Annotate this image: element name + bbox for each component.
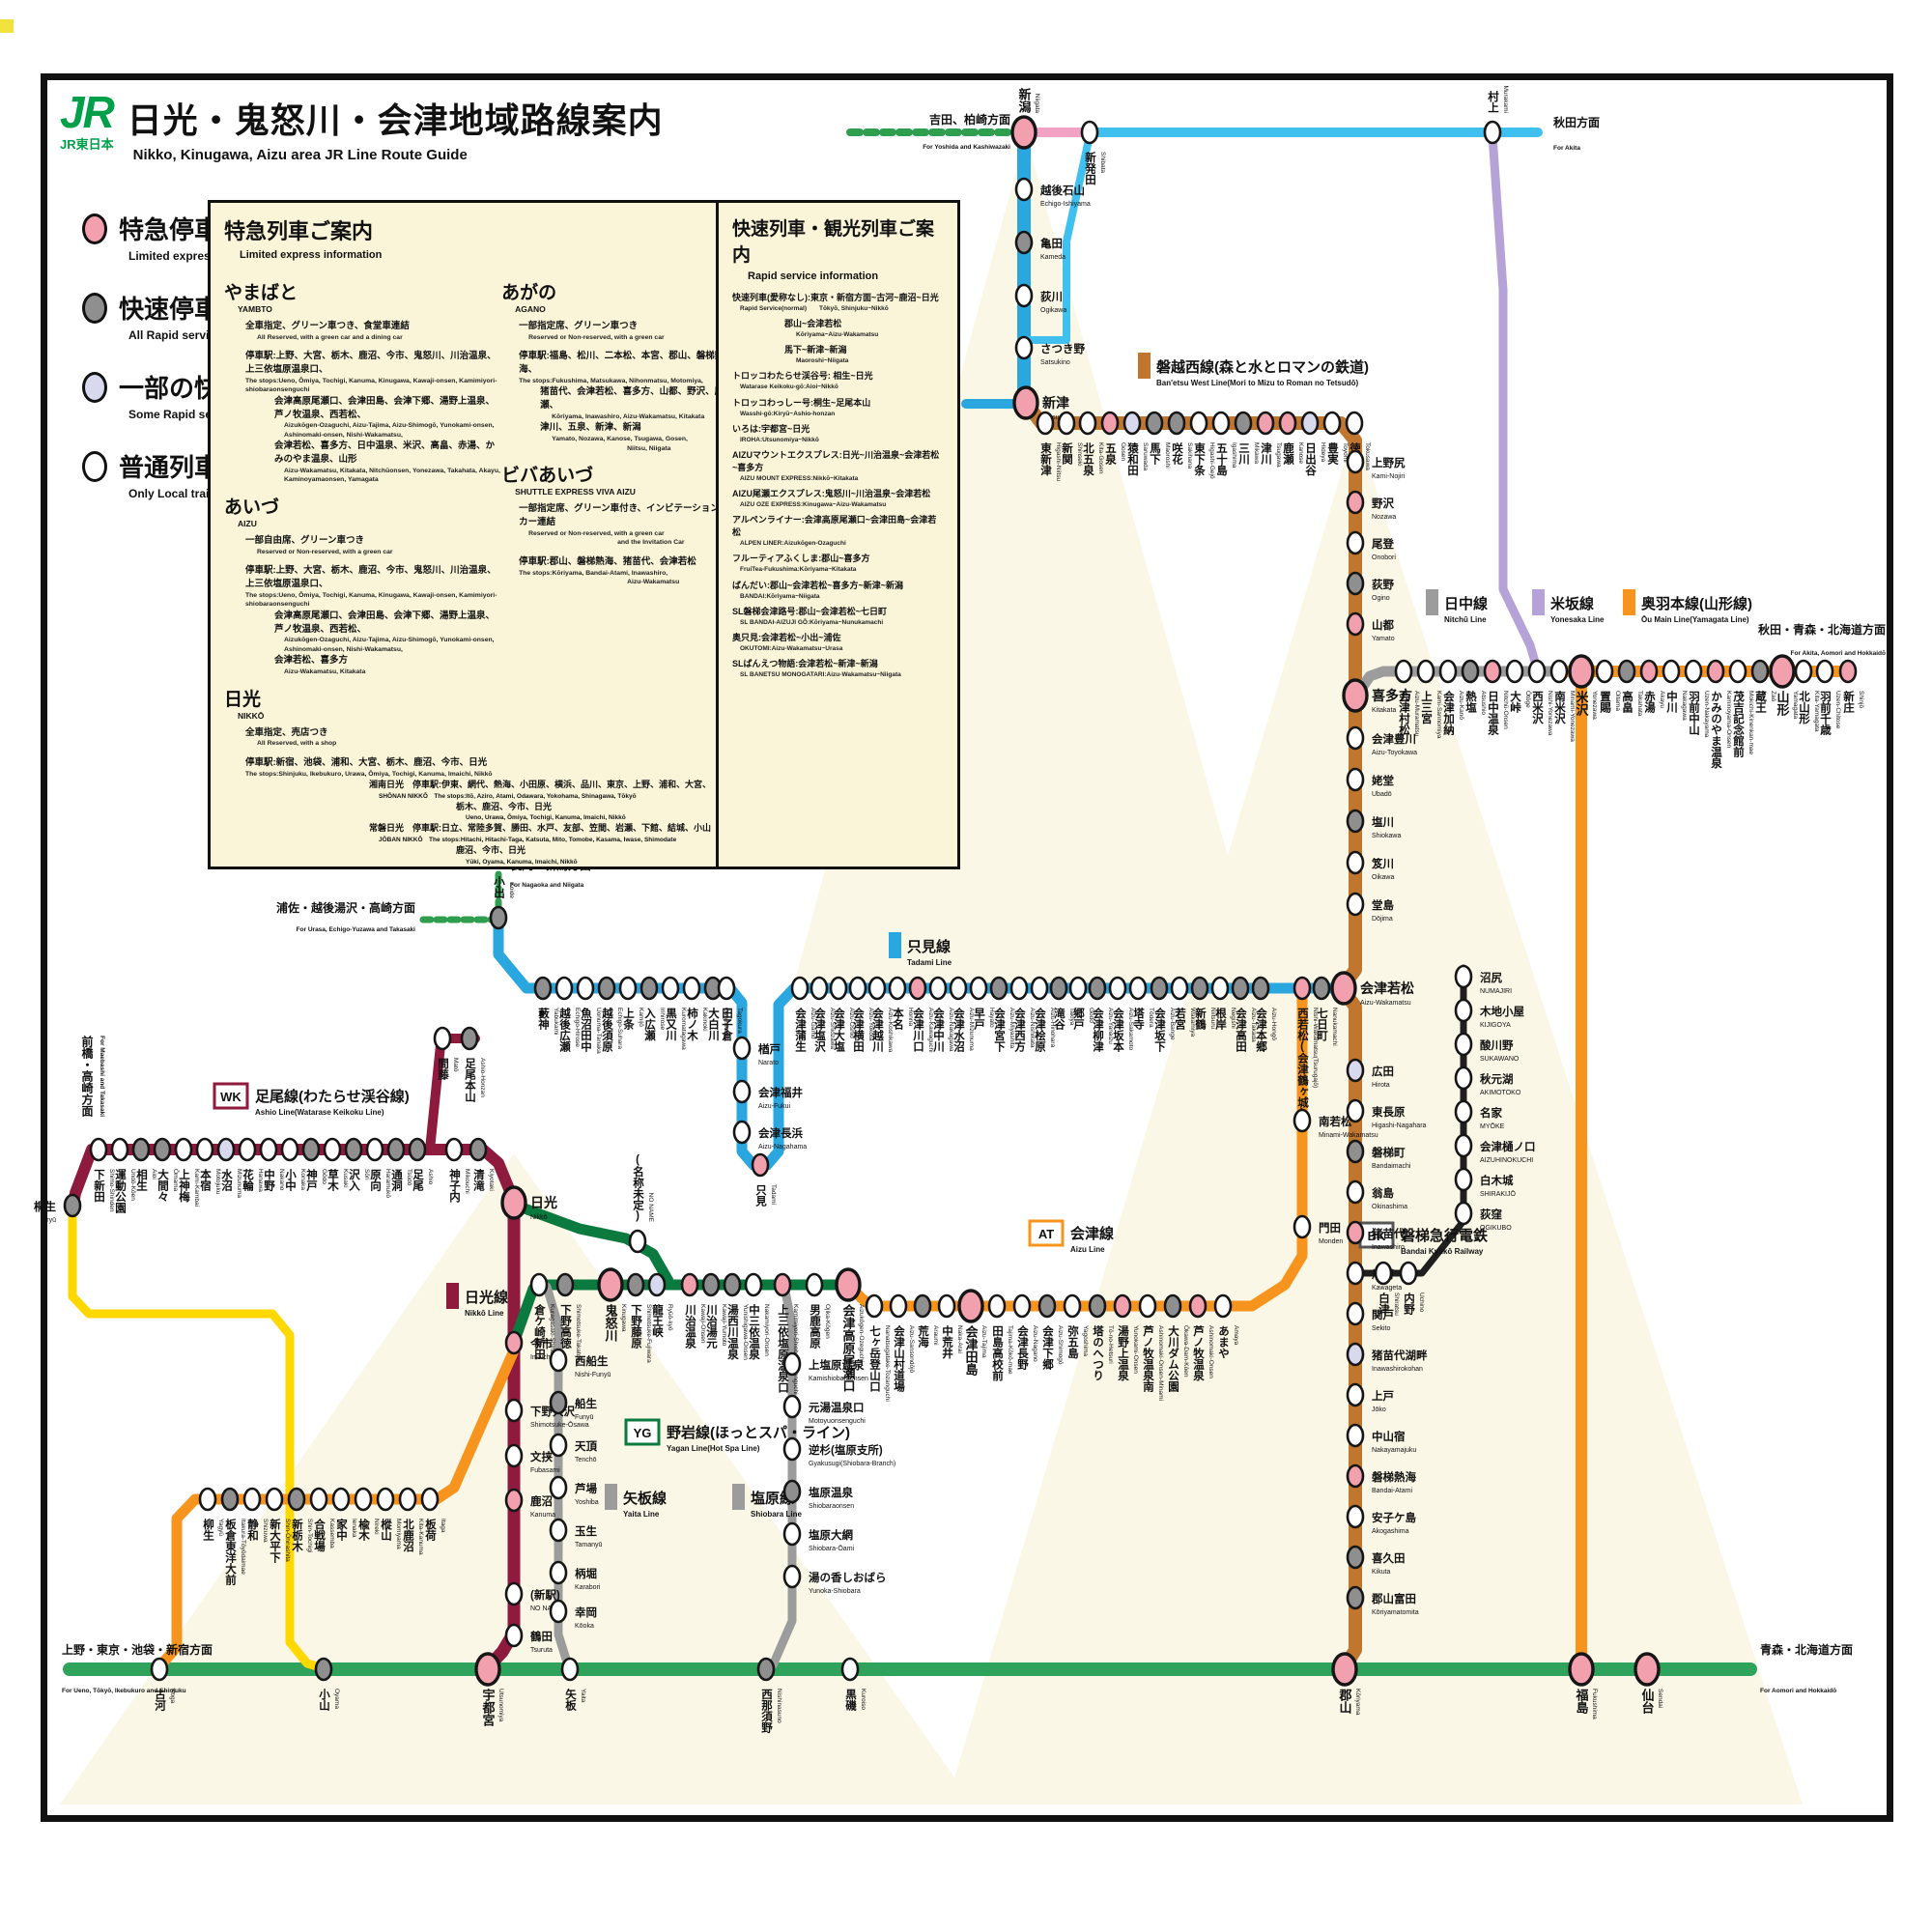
info-text-row: YAMBTO [238,304,501,314]
station-Shiobara-Ōami [784,1523,800,1545]
station-Shimotsuke-Takatoku [557,1274,573,1295]
station-label-en: Tamanyū [575,1542,603,1548]
station-label: 木地小屋 [1479,1005,1524,1018]
station-label-en: Nakayamajuku [1372,1447,1416,1454]
station-KIJIGOYA [1456,1000,1471,1021]
station-label-en: Utsunomiya [497,1689,504,1722]
station-label: 古河 [154,1688,166,1712]
station-Satsukino [1016,337,1032,358]
station-label-en: Ogikawa [1040,307,1066,314]
station-label: 小山 [318,1688,331,1712]
station-Tajima-Kōkō-mae [989,1295,1005,1317]
station-label-en: Nireki [373,1519,380,1535]
station-label-en: Funyū [575,1414,594,1421]
station-label-en: Shiokawa [1372,833,1401,839]
station-Higashi-Niitsu [1037,412,1053,434]
station-label-en: Ashio [427,1169,434,1185]
info-text-row: ばんだい:郡山~会津若松~喜多方~新津~新潟 [732,580,944,592]
station-Aizukōgen-Ozeguchi [837,1269,860,1300]
station-label-en: Ashinomaki-Onsen [1207,1325,1214,1378]
station-label-en: Kameda [1040,254,1065,261]
station-label-en: Tagokura [736,1008,743,1034]
station-Aizu-Yokota [850,978,866,999]
page-subtitle: Nikko, Kinugawa, Aizu area JR Line Route… [133,147,664,163]
direction-label: 前橋・高崎方面 [80,1035,94,1118]
station-Nishi-Funyū [551,1350,566,1371]
station-Nozawa [1348,492,1363,513]
line-name-en: Ban'etsu West Line(Mori to Mizu to Roman… [1156,379,1358,387]
station-Atsushio [1463,661,1478,682]
station-Honna [890,978,905,999]
station-label-en: Nanukamachi [1331,1008,1338,1046]
station-label: 亀田 [1040,237,1063,250]
station-Saruwada [1124,412,1140,434]
limited-express-title-en: Limited express information [240,249,728,261]
station-Motojuku [197,1139,213,1160]
station-label: 越後広瀬 [558,1007,572,1053]
station-Kami-Nojiri [1348,451,1363,472]
station-label: 新発田 [1084,151,1097,185]
station-label: 田子倉 [721,1008,734,1041]
station-label-en: Ōkawa-Dam-Kōen [1182,1325,1190,1378]
station-Koide [491,907,506,928]
info-text-row: Kōriyama, Inawashiro, Aizu-Wakamatsu, Ki… [552,412,728,422]
info-text-row: ビバあいづ [501,461,728,487]
station-label-en: Sekito [1372,1325,1391,1332]
station-label: 蔵王 [1754,690,1767,714]
station-label-en: Echigo-Ishiyama [1040,201,1091,208]
info-text-row: Maoroshi~Niigata [796,356,944,365]
info-text-row: All Reserved, with a shop [257,739,501,749]
limited-express-info-box: 特急列車ご案内 Limited express information やまばと… [208,200,745,869]
station-label: 会津田島 [964,1324,979,1377]
info-text-row: AIZUマウントエクスプレス:日光~川治温泉~会津若松~喜多方 [732,449,944,474]
info-text-row: フルーティアふくしま:郡山~喜多方 [732,553,944,565]
station-Jōko [1348,1384,1363,1406]
station-label-en: Araumi [932,1325,939,1346]
station-Shin-Tochigi [289,1489,304,1510]
station-Kawaji-Onsen [682,1274,697,1295]
station-label: 会津桧原 [1034,1007,1047,1053]
station-label: 会津蒲生 [794,1007,808,1053]
station-Sekito [1348,1303,1363,1324]
station-Yamagata [1771,656,1794,687]
info-text-row: 猪苗代、会津若松、喜多方、山都、野沢、鹿瀬、 [540,385,728,412]
station-label: 猪苗代湖畔 [1371,1349,1428,1362]
station-label: 小出 [493,875,506,899]
station-MYŌKE [1456,1101,1471,1122]
station-label: 熱塩 [1464,690,1477,714]
station-Inawashiro [1348,1222,1363,1243]
line-name: 野岩線(ほっとスパ・ライン) [667,1424,850,1441]
station-Mokichi-Kinenkan-mae [1730,661,1746,682]
station-Mikawa [1236,412,1251,434]
station-label-en: Kinugawa [620,1304,627,1332]
station-Kuragasaki-Shinden [531,1274,547,1295]
station-Kōriyama [1333,1654,1356,1685]
badge-letters: WK [220,1090,241,1104]
station-label: 北五泉 [1082,441,1095,476]
station-label: 七日町 [1316,1007,1328,1041]
station-label: 田島高校前 [991,1325,1004,1381]
station-Echigo-Ishiyama [1016,179,1032,200]
station-label: 会津中川 [932,1007,946,1053]
station-label: 玉生 [575,1524,597,1538]
station-Kiryū [65,1195,80,1216]
line-name: 奥羽本線(山形線) [1641,595,1752,612]
station-label: 足尾 [412,1169,425,1192]
info-text-row: 会津高原尾瀬口、会津田島、会津下郷、湯野上温泉、芦ノ牧温泉、西若松、 [274,395,501,422]
station-label-en: Tsugawa [1275,442,1282,468]
station-label: 下野藤原 [630,1304,642,1350]
station-label: 西若松(会津鶴ヶ城) [1296,1008,1310,1120]
station-label: 荻川 [1040,290,1063,303]
station-Minami-Wakamatsu [1294,1110,1310,1131]
station-label: 合戦場 [313,1518,326,1552]
station-label: 猿和田 [1126,441,1140,476]
station-label: 野沢 [1372,497,1394,510]
station-label: 新鶴 [1194,1007,1207,1031]
station-label-en: Ryūō-kyō [667,1304,673,1331]
jr-east-logo-text: JR東日本 [60,134,114,153]
station-Naka-Arai [939,1295,954,1317]
station-label: 若宮 [1174,1007,1186,1031]
station-label-en: Yunoka-Shiobara [809,1588,861,1595]
station-label: 会津横田 [852,1007,866,1053]
station-label: 元湯温泉口 [809,1401,865,1414]
station-Haramukō [367,1139,383,1160]
station-label-en: Inawashirokohan [1372,1366,1423,1373]
station-label-en: Yagoshima [1082,1325,1089,1356]
station-label-en: Mikouchi [464,1169,470,1194]
direction-label-en: For Maebashi and Takasaki [99,1036,105,1117]
station-label: 村上 [1487,90,1499,113]
station-label-en: Kawageta [1372,1285,1402,1292]
station-label: 白木城 [1480,1174,1514,1187]
line-name: 只見線 [907,938,951,955]
station-label-en: Bandaimachi [1372,1163,1411,1170]
station-label: 会津加納 [1442,690,1456,736]
info-text-row: Reserved or Non-reserved, with a green c… [528,333,728,343]
station-Aizu-Nagano [1014,1295,1030,1317]
station-label: 会津山村道場 [893,1324,906,1393]
line-name: 日光線 [465,1289,508,1306]
info-text-row: SLばんえつ物語:会津若松~新津~新潟 [732,658,944,670]
station-label-en: Inawashiro [1372,1244,1405,1251]
station-Shin-Ōhirashita [267,1489,282,1510]
station-Ashinomaki-Onsen [1190,1295,1206,1317]
station-label-en: Shiratsu [1393,1293,1400,1316]
station-label-en: Aizu-Sansondōjō [908,1325,915,1374]
station-label: 会津柳津 [1092,1007,1105,1053]
station-label: 茂吉記念館前 [1732,690,1746,758]
info-text-row: 八王子日光:八王子、立川、新秋津、北朝霞、大宮、栃木、鹿沼、今市、日光 [369,867,728,869]
station-label: 喜久田 [1372,1551,1406,1565]
station-label: 上野尻 [1372,456,1406,469]
line-name-en: Shiobara Line [751,1510,802,1519]
station-label-en: Matō [452,1058,459,1072]
info-text-row [224,342,501,350]
station-Higashi-Gejō [1191,412,1207,434]
station-label-en: Mokichi-Kinenkan-mae [1747,691,1754,754]
station-label: 荒海 [917,1324,930,1349]
line-name-en: Yonesaka Line [1550,615,1605,624]
station-label: 五十島 [1215,442,1228,476]
station-label-en: Murakami [1502,85,1509,113]
station-label-en: Tsuruta [530,1647,553,1654]
station-Yunokami-Onsen [1115,1295,1130,1317]
station-OGIKUBO [1456,1203,1471,1224]
info-text-row: Aizukōgen-Ozaguchi, Aizu-Tajima, Aizu-Sh… [284,636,501,654]
station-label: (名称未定) [632,1154,645,1222]
info-text-row: Wasshi-gō:Kiryū~Ashio-honzan [740,410,944,418]
station-label-en: Gosen [1120,442,1126,462]
station-Kita-Gosen [1080,412,1095,434]
station-label: 湯野上温泉 [1117,1324,1130,1381]
station-Sendai [1635,1654,1659,1685]
station-label: 日中温泉 [1487,691,1500,736]
station-label-en: Kita-Gosen [1097,442,1104,474]
info-text-row: All Reserved, with a green car and a din… [257,333,501,343]
station-Funyū [551,1392,566,1413]
station-Hayato [971,978,986,999]
station-label-en: NUMAJIRI [1480,988,1512,995]
station-label: 本名 [892,1007,904,1031]
station-NO NAME [630,1231,645,1252]
station-label: 東長原 [1372,1105,1406,1119]
info-text-row: AIZU [238,519,501,528]
info-text-row: Aizukōgen-Ozaguchi, Aizu-Tajima, Aizu-Sh… [284,421,501,440]
station-label: 原向 [369,1169,382,1192]
direction-label-en: For Akita [1553,145,1580,152]
station-Aizu-Wakamatsu [1332,973,1355,1004]
station-label: 小中 [284,1168,298,1192]
station-label: 磐梯町 [1371,1146,1406,1159]
rapid-dot-icon [82,293,107,324]
station-label: 沼尻 [1480,971,1502,984]
station-Okinashima [1348,1181,1363,1203]
station-Kuroiso [842,1659,858,1680]
station-label: 郷戸 [1072,1007,1085,1031]
info-text-row: トロッコわたらせ渓谷号: 相生~日光 [732,370,944,383]
station-label-en: Shinjō [1858,691,1864,708]
info-text-row: 湘南日光 停車駅:伊東、網代、熱海、小田原、横浜、品川、東京、上野、浦和、大宮、 [369,779,728,792]
info-text-row: JŌBAN NIKKŌ The stops:Hitachi, Hitachi-T… [379,836,728,844]
station-label-en: Kita-Kanuma [417,1519,424,1555]
station-label-en: Motoyuonsenguchi [809,1418,866,1425]
station-Shinjō [1840,661,1856,682]
station-Tsugawa [1258,412,1273,434]
station-label: 新大平下 [269,1518,281,1564]
station-Takiya [1051,978,1066,999]
limited-express-dot-icon [82,213,107,244]
line-name-en: Yagan Line(Hot Spa Line) [667,1444,760,1453]
station-label: 羽前千歳 [1819,691,1832,736]
station-label-en: Takahata [1636,691,1643,717]
line-name: 会津線 [1070,1225,1114,1242]
station-label: 会津坂本 [1112,1007,1125,1053]
station-Kusaki [325,1139,340,1160]
station-Yonezawa [1570,656,1593,687]
station-SUKAWANO [1456,1034,1471,1055]
local-dot-icon [82,451,107,482]
station-label: 樅山 [380,1518,392,1542]
station-label-en: Uzen-Chitose [1834,691,1841,729]
direction-label-en: For Yoshida and Kashiwazaki [923,144,1010,151]
info-text-row: The stops:Fukushima, Matsukawa, Nihonmat… [519,377,728,386]
station-label: 日光 [530,1195,557,1210]
info-text-row: 一部指定席、グリーン車付き、インビテーションカー連結 [519,502,728,529]
info-text-row: あいづ [224,493,501,519]
station-label-en: Shibata [1099,152,1106,173]
station-label-en: Minami-Wakamatsu [1319,1132,1378,1139]
info-text-row: 会津若松、喜多方 [274,654,501,668]
station-label-en: Ashio-Honzan [479,1058,486,1097]
station-label-en: Higashi-Gejō [1208,442,1215,479]
station-Ashinomaki-Onsen-Minami [1140,1295,1155,1317]
station-label-en: Tō-no-Hetsuri [1107,1325,1114,1364]
station-Tadami [753,1154,768,1176]
station-Aizu-Sakamoto [1110,978,1125,999]
station-label: 足尾本山 [464,1058,477,1103]
station-label-en: Mikawa [1253,442,1260,464]
station-Tsūdō [388,1139,404,1160]
station-Aioi [133,1139,149,1160]
station-label-en: Tajima-Kōkō-mae [1007,1325,1013,1375]
station-label: 清滝 [472,1168,485,1192]
station-Negishi [1212,978,1228,999]
station-Nakano [261,1139,276,1160]
station-Konaka [282,1139,298,1160]
station-Shibata [1082,122,1097,143]
station-label-en: AIZUHINOKUCHI [1480,1157,1533,1164]
line-name-en: Nikkō Line [465,1309,504,1318]
station-label-en: Kiryū [41,1217,56,1224]
info-text-row [224,556,501,564]
station-Ashio-Honzan [462,1028,477,1049]
station-label: 豊実 [1326,441,1339,466]
station-label: 花輪 [241,1168,254,1192]
station-label-en: Ogino [1372,595,1390,602]
station-label-en: Kanose [1297,442,1304,464]
station-Niitsu [1014,387,1037,418]
station-label: 会津高田 [1235,1007,1248,1053]
station-label: 荻窪 [1480,1207,1502,1221]
station-label: 板倉東洋大前 [224,1518,238,1586]
line-name-en: Ashio Line(Watarase Keikoku Line) [255,1108,384,1117]
station-label: 沢入 [348,1168,360,1192]
station-Uonuma-Tanaka [578,978,593,999]
station-Nakayamajuku [1348,1425,1363,1446]
line-name-en: Nitchū Line [1444,615,1487,624]
station-SHIRAKIJŌ [1456,1169,1471,1190]
station-Karabori [551,1562,566,1583]
station-label: 天頂 [575,1440,597,1453]
station-label: 楢戸 [758,1042,781,1056]
station-Fubasami [506,1445,522,1466]
station-Akayu [1641,661,1657,682]
station-Nanukamachi [1314,978,1329,999]
station-label-en: Koide [508,882,515,898]
station-label: 文挟 [530,1450,553,1463]
station-label: 川治湯元 [705,1304,719,1350]
info-text-row: AIZU MOUNT EXPRESS:Nikkō~Kitakata [740,474,944,483]
info-text-row: 奥只見:会津若松~小出~浦佐 [732,632,944,644]
station-label-en: Hirota [1372,1082,1390,1089]
station-label: さつき野 [1040,343,1085,355]
station-Toyomi [1324,412,1340,434]
station-label: 中山宿 [1372,1430,1406,1443]
station-label-en: Nishi-Funyū [575,1372,611,1378]
info-text-row: AGANO [515,304,728,314]
station-Yunishigawa-Onsen [724,1274,740,1295]
station-label-en: Itakura-Tōyōdaimae [240,1519,246,1575]
station-Undō-Kōen [112,1139,128,1160]
info-text-row: 全車指定、売店つき [245,726,501,740]
station-Mizunuma [218,1139,234,1160]
station-Kawageta [1348,1263,1363,1284]
station-label: 大峠 [1509,690,1521,714]
info-text-row: 常磐日光 停車駅:日立、常陸多賀、勝田、水戸、友部、笠間、岩瀬、下館、結城、小山 [369,822,728,836]
station-label-en: OGIKUBO [1480,1225,1512,1232]
station-Kamijō [620,978,636,999]
station-Uchino [1401,1263,1416,1284]
station-Araumi [915,1295,930,1317]
station-label-en: Kikuta [1372,1569,1391,1576]
station-label: 会津長浜 [757,1126,803,1140]
station-label: 芦ノ牧温泉南 [1142,1324,1155,1393]
station-label: 尾登 [1371,537,1394,551]
station-Igashima [1213,412,1229,434]
station-label: 会津川口 [912,1007,925,1053]
station-label: 宇都宮 [481,1688,497,1726]
station-label-en: Aizu-Shimogō [1057,1325,1064,1365]
station-Ashio [410,1139,425,1160]
station-label: 会津下郷 [1041,1324,1055,1371]
rapid-service-info-box: 快速列車・観光列車ご案内 Rapid service information 快… [716,200,960,869]
station-Akogashima [1348,1506,1363,1527]
station-Kawaji-Yumoto [703,1274,719,1295]
station-label-en: Naka-Arai [956,1325,963,1353]
station-label-en: Uchino [1418,1293,1425,1313]
station-label-en: Narato [758,1060,779,1066]
station-label-en: Monden [1319,1238,1343,1245]
station-label-en: Nakamiyori-Onsen [763,1304,770,1356]
station-Aizu-Shimogō [1039,1295,1055,1317]
station-Ōtōge [1507,661,1522,682]
station-label-en: Aizukōgen-Ozeguchi [858,1304,865,1362]
station-label: 上三依塩原温泉口 [777,1303,790,1394]
station-Aizu-Hongō [1253,978,1268,999]
station-label: 日出谷 [1304,442,1317,476]
station-label: 西米沢 [1531,691,1545,724]
info-text-row: 鹿沼、今市、日光 [456,844,728,858]
station-label: 倉ケ崎新田 [533,1303,547,1360]
station-label-en: Kōoka [575,1623,594,1630]
station-label-en: Uzen-Nakayama [1703,691,1710,738]
station-Tsuruta [506,1625,522,1646]
station-Nishi-Yonezawa [1529,661,1545,682]
station-label: 秋元湖 [1480,1072,1514,1086]
station-Utsunomiya [476,1654,499,1685]
station-label: 鶴田 [530,1630,553,1643]
station-Niigata [1012,117,1036,148]
station-label-en: Ashinomaki-Onsen-Minami [1157,1325,1164,1401]
station-Amaya [1215,1295,1231,1317]
station-label: あまや [1217,1325,1230,1359]
station-label: 運動公園 [114,1169,127,1214]
station-Tokusawa [1347,412,1362,434]
